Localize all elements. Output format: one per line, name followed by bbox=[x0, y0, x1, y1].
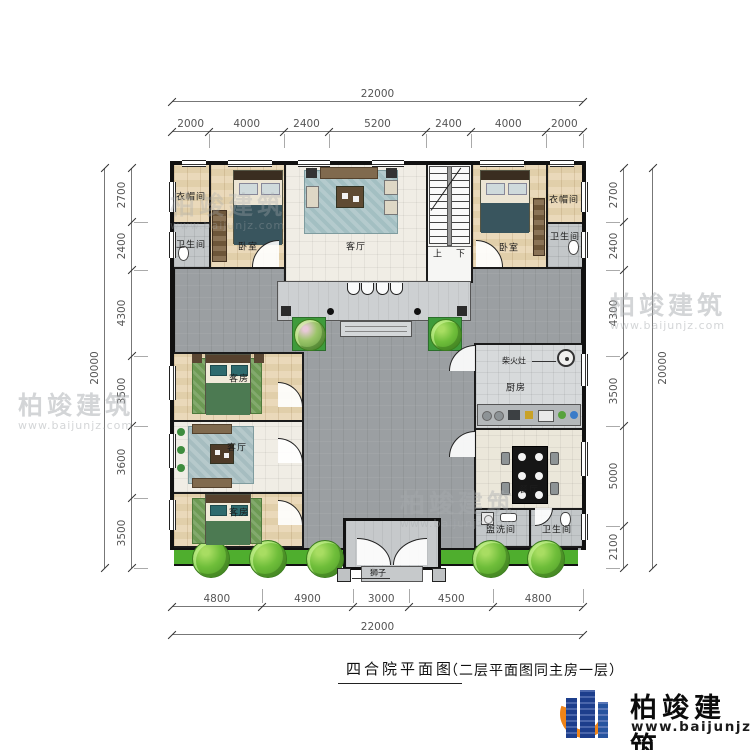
washing-machine bbox=[481, 512, 494, 525]
dim-top-total-value: 22000 bbox=[361, 88, 394, 100]
dim-bottom-seg-ext bbox=[262, 589, 263, 603]
dim-left-seg-value: 3500 bbox=[116, 378, 128, 405]
window bbox=[182, 160, 206, 167]
window bbox=[581, 232, 588, 258]
dim-right-seg-tick bbox=[619, 522, 627, 530]
dim-left-seg-tick bbox=[127, 164, 135, 172]
floorplan-canvas: 2200020004000240052002400400020004800490… bbox=[0, 0, 750, 750]
brand-name: 柏竣建筑 bbox=[630, 686, 750, 750]
window bbox=[581, 354, 588, 386]
dim-left-total-value: 20000 bbox=[89, 351, 101, 384]
stove-leader-line bbox=[532, 361, 556, 362]
dim-right-total-tick bbox=[648, 564, 656, 572]
window bbox=[169, 182, 176, 212]
dim-top-seg-value: 4000 bbox=[233, 118, 260, 130]
dim-right-seg-tick bbox=[619, 266, 627, 274]
dim-bottom-seg-tick bbox=[579, 602, 587, 610]
dim-bottom-seg-value: 4800 bbox=[525, 593, 552, 605]
room-bathroom-left bbox=[172, 222, 211, 269]
stair-rail bbox=[447, 166, 452, 246]
dim-right-seg-ext bbox=[606, 222, 620, 223]
dim-right-seg-ext bbox=[606, 526, 620, 527]
dim-right-seg-value: 3500 bbox=[608, 378, 620, 405]
window bbox=[581, 182, 588, 212]
window bbox=[581, 514, 588, 540]
dim-right-total-value: 20000 bbox=[657, 351, 669, 384]
dim-left-seg-tick bbox=[127, 218, 135, 226]
dim-top-total-tick bbox=[579, 97, 587, 105]
dim-bottom-seg-ext bbox=[353, 589, 354, 603]
tree bbox=[249, 540, 287, 578]
entry-steps bbox=[340, 321, 412, 337]
coffee-table bbox=[210, 444, 234, 464]
sink bbox=[500, 513, 517, 522]
dim-top-seg-tick bbox=[579, 127, 587, 135]
dim-bottom-seg-value: 4900 bbox=[294, 593, 321, 605]
dim-top-total-tick bbox=[168, 97, 176, 105]
dim-top-seg-value: 4000 bbox=[495, 118, 522, 130]
dim-top-seg-tick bbox=[325, 127, 333, 135]
dim-left-seg-ext bbox=[134, 426, 148, 427]
dim-top-seg-line bbox=[172, 131, 583, 132]
brand-url: www.baijunjz.com bbox=[631, 719, 750, 735]
watermark-brand: 柏竣建筑 bbox=[610, 292, 726, 320]
toilet bbox=[560, 512, 571, 527]
sofa bbox=[192, 478, 232, 488]
dim-left-total-tick bbox=[100, 564, 108, 572]
dim-bottom-total-line bbox=[172, 634, 583, 635]
dim-top-seg-ext bbox=[583, 134, 584, 148]
stone-lion-right bbox=[432, 568, 446, 582]
dim-top-seg-tick bbox=[205, 127, 213, 135]
dim-top-seg-value: 2400 bbox=[293, 118, 320, 130]
dining-chair bbox=[550, 452, 559, 465]
tree bbox=[192, 540, 230, 578]
dim-bottom-seg-ext bbox=[409, 589, 410, 603]
dim-right-seg-value: 4300 bbox=[608, 300, 620, 327]
bed bbox=[205, 494, 251, 544]
plant bbox=[177, 446, 185, 454]
dim-left-seg-tick bbox=[127, 352, 135, 360]
armchair bbox=[384, 180, 398, 195]
coffee-table bbox=[336, 186, 364, 208]
dim-right-seg-value: 2400 bbox=[608, 233, 620, 260]
dim-left-seg-value: 3500 bbox=[116, 520, 128, 547]
dim-left-seg-tick bbox=[127, 564, 135, 572]
window bbox=[372, 160, 404, 167]
porch-column bbox=[457, 306, 467, 316]
tree bbox=[527, 540, 565, 578]
dim-left-seg-tick bbox=[127, 494, 135, 502]
dim-top-seg-ext bbox=[284, 134, 285, 148]
dim-right-seg-ext bbox=[606, 426, 620, 427]
kitchen-counter bbox=[477, 404, 581, 426]
dim-right-seg-tick bbox=[619, 564, 627, 572]
window bbox=[169, 232, 176, 258]
shrub bbox=[430, 319, 462, 351]
side-table bbox=[386, 168, 397, 178]
dim-bottom-seg-value: 4800 bbox=[203, 593, 230, 605]
dim-left-seg-ext bbox=[134, 222, 148, 223]
dim-top-seg-tick bbox=[422, 127, 430, 135]
dim-bottom-seg-ext bbox=[493, 589, 494, 603]
dim-top-seg-tick bbox=[280, 127, 288, 135]
dim-left-seg-ext bbox=[134, 356, 148, 357]
window bbox=[169, 366, 176, 400]
dim-top-seg-ext bbox=[329, 134, 330, 148]
dining-chair bbox=[550, 482, 559, 495]
dim-bottom-seg-tick bbox=[489, 602, 497, 610]
plant bbox=[177, 428, 185, 436]
window bbox=[480, 160, 524, 167]
dining-chair bbox=[501, 452, 510, 465]
dim-top-seg-value: 5200 bbox=[364, 118, 391, 130]
dim-right-seg-value: 2100 bbox=[608, 534, 620, 561]
stair-landing-line bbox=[428, 246, 471, 247]
dim-bottom-total-tick bbox=[579, 630, 587, 638]
bed bbox=[233, 170, 283, 244]
gate-path bbox=[361, 566, 423, 582]
logo-tower bbox=[598, 702, 608, 738]
dim-right-seg-ext bbox=[606, 356, 620, 357]
sofa bbox=[192, 424, 232, 434]
watermark-brand: 柏竣建筑 bbox=[18, 392, 134, 420]
dim-right-seg-value: 5000 bbox=[608, 463, 620, 490]
dim-left-seg-value: 4300 bbox=[116, 300, 128, 327]
dim-right-seg-value: 2700 bbox=[608, 182, 620, 209]
dim-top-seg-ext bbox=[471, 134, 472, 148]
dim-right-seg-ext bbox=[606, 568, 620, 569]
window bbox=[550, 160, 574, 167]
dim-bottom-seg-tick bbox=[168, 602, 176, 610]
dim-bottom-total-value: 22000 bbox=[361, 621, 394, 633]
armchair bbox=[306, 186, 319, 208]
porch bbox=[277, 281, 471, 321]
dim-bottom-seg-tick bbox=[349, 602, 357, 610]
dim-bottom-seg-ext bbox=[583, 589, 584, 603]
dim-left-seg-ext bbox=[134, 270, 148, 271]
logo-tower bbox=[580, 690, 595, 738]
dim-left-seg-line bbox=[131, 168, 132, 568]
nightstand bbox=[254, 354, 264, 363]
dim-left-seg-tick bbox=[127, 422, 135, 430]
drawing-title-note: （二层平面图同主房一层） bbox=[444, 660, 624, 680]
nightstand bbox=[192, 354, 202, 363]
dim-right-seg-ext bbox=[606, 270, 620, 271]
dim-right-seg-tick bbox=[619, 352, 627, 360]
dim-top-seg-ext bbox=[546, 134, 547, 148]
watermark-url: www.baijunjz.com bbox=[18, 420, 134, 432]
bed bbox=[480, 170, 530, 232]
window bbox=[581, 442, 588, 476]
bed bbox=[205, 354, 251, 414]
toilet bbox=[178, 246, 189, 261]
lion-label-underline bbox=[366, 578, 390, 579]
dim-top-seg-tick bbox=[467, 127, 475, 135]
sofa bbox=[320, 167, 378, 179]
shrub bbox=[294, 319, 326, 351]
dim-right-seg-tick bbox=[619, 422, 627, 430]
dim-bottom-seg-value: 4500 bbox=[438, 593, 465, 605]
room-cloakroom-left bbox=[172, 163, 211, 224]
dim-top-seg-ext bbox=[209, 134, 210, 148]
dim-bottom-seg-line bbox=[172, 606, 583, 607]
dim-top-seg-value: 2400 bbox=[435, 118, 462, 130]
window bbox=[298, 160, 330, 167]
stone-lion-left bbox=[337, 568, 351, 582]
wood-stove bbox=[557, 349, 575, 367]
dim-top-seg-tick bbox=[541, 127, 549, 135]
dim-right-total-tick bbox=[648, 164, 656, 172]
dim-top-seg-value: 2000 bbox=[551, 118, 578, 130]
dresser bbox=[533, 198, 545, 256]
side-table bbox=[306, 168, 317, 178]
dim-left-seg-ext bbox=[134, 568, 148, 569]
armchair bbox=[384, 200, 398, 215]
window bbox=[169, 434, 176, 468]
watermark-url: www.baijunjz.com bbox=[610, 320, 726, 332]
dim-left-seg-value: 2700 bbox=[116, 182, 128, 209]
brand-logo-mark bbox=[556, 684, 624, 744]
dim-left-seg-value: 2400 bbox=[116, 233, 128, 260]
porch-column bbox=[327, 308, 334, 315]
dim-top-seg-tick bbox=[168, 127, 176, 135]
dim-bottom-total-tick bbox=[168, 630, 176, 638]
dim-bottom-seg-tick bbox=[405, 602, 413, 610]
wardrobe bbox=[212, 210, 227, 262]
dim-right-total-line bbox=[652, 168, 653, 568]
dim-right-seg-tick bbox=[619, 218, 627, 226]
dim-left-total-line bbox=[104, 168, 105, 568]
dining-chair bbox=[501, 482, 510, 495]
dim-bottom-seg-tick bbox=[257, 602, 265, 610]
room-cloakroom-right bbox=[546, 163, 584, 224]
window bbox=[228, 160, 272, 167]
dim-left-seg-value: 3600 bbox=[116, 449, 128, 476]
porch-column bbox=[414, 308, 421, 315]
logo-tower bbox=[566, 698, 577, 738]
watermark: 柏竣建筑 www.baijunjz.com bbox=[610, 292, 726, 332]
porch-column bbox=[281, 306, 291, 316]
dim-right-seg-line bbox=[623, 168, 624, 568]
dim-bottom-seg-value: 3000 bbox=[368, 593, 395, 605]
dim-top-seg-ext bbox=[426, 134, 427, 148]
dim-left-seg-tick bbox=[127, 266, 135, 274]
dim-top-seg-value: 2000 bbox=[177, 118, 204, 130]
dim-left-total-tick bbox=[100, 164, 108, 172]
dim-top-total-line bbox=[172, 101, 583, 102]
tree bbox=[472, 540, 510, 578]
plant bbox=[177, 464, 185, 472]
window bbox=[169, 500, 176, 530]
dim-left-seg-ext bbox=[134, 498, 148, 499]
toilet bbox=[568, 240, 579, 255]
wall-west bbox=[170, 161, 174, 550]
watermark: 柏竣建筑 www.baijunjz.com bbox=[18, 392, 134, 432]
dim-right-seg-tick bbox=[619, 164, 627, 172]
dining-table bbox=[512, 446, 548, 504]
